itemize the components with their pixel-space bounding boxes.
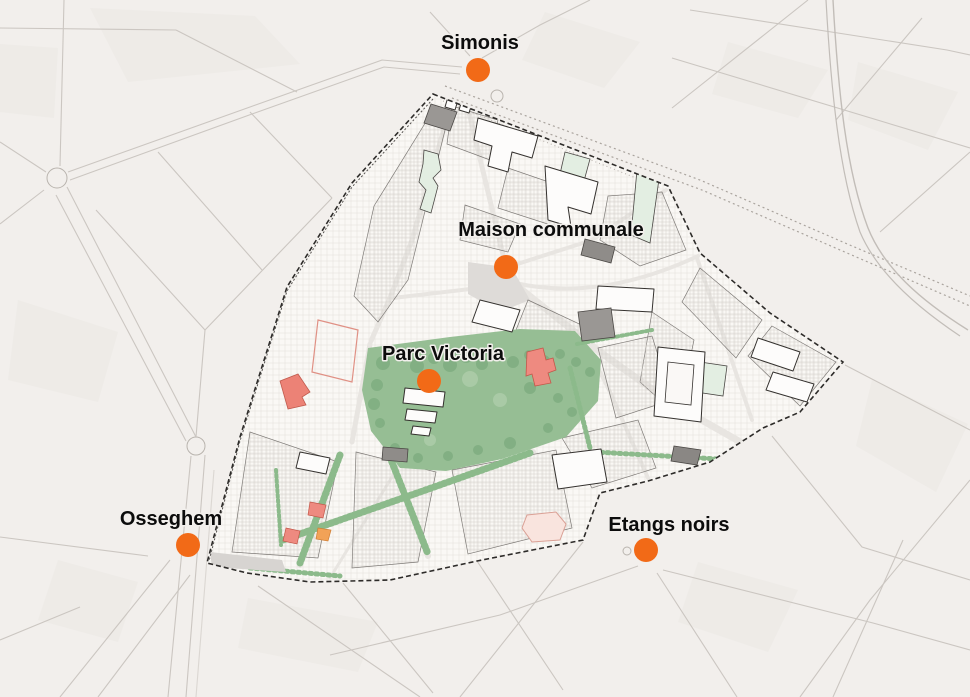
city-map: SimonisMaison communaleParc VictoriaOsse… (0, 0, 970, 697)
roundabout-west (47, 168, 67, 188)
marker-label-osseghem: Osseghem (120, 508, 222, 530)
marker-dot-parc-victoria[interactable] (417, 369, 441, 393)
roundabout-osseghem (187, 437, 205, 455)
marker-dot-maison-communale[interactable] (494, 255, 518, 279)
project-area (195, 85, 855, 595)
roundabout-simonis (491, 90, 503, 102)
marker-label-simonis: Simonis (441, 32, 519, 54)
marker-dot-simonis[interactable] (466, 58, 490, 82)
marker-label-etangs-noirs: Etangs noirs (608, 514, 729, 536)
marker-label-maison-communale: Maison communale (458, 219, 644, 241)
marker-dot-etangs-noirs[interactable] (634, 538, 658, 562)
marker-dot-osseghem[interactable] (176, 533, 200, 557)
marker-label-parc-victoria: Parc Victoria (382, 343, 505, 365)
map-canvas: SimonisMaison communaleParc VictoriaOsse… (0, 0, 970, 697)
